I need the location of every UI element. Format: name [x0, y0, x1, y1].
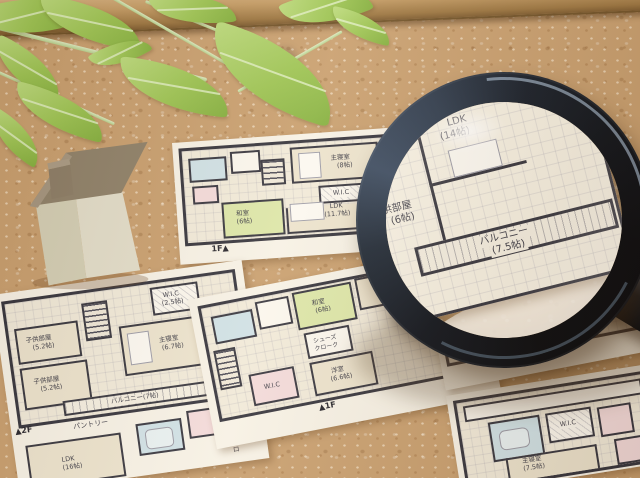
- bed-symbol: [298, 152, 322, 179]
- plan-c-shoes-cloak: シューズ クローク: [304, 325, 354, 359]
- plan-a-washitsu: 和室 (6帖): [221, 198, 285, 238]
- cork-board: 和室 (6帖) 主寝室 (8帖) W.I.C LDK (11.7帖) 1F▲ 2…: [0, 0, 640, 478]
- plan-e-room-2: [614, 434, 640, 465]
- house-model: [19, 130, 158, 293]
- floor-label-1f: ▲1F: [318, 400, 337, 412]
- room-size-label: (6.6帖): [330, 372, 353, 384]
- room-label: バルコニー(7帖): [109, 392, 162, 407]
- plan-b-stairs: [81, 300, 112, 341]
- magnifier-lens: LDK (14帖) 子供部屋 (6帖) 部屋 (帖) バルコニー (7.5帖): [386, 102, 622, 338]
- room-size-label: (5.2帖): [40, 383, 63, 394]
- bed-symbol: [127, 331, 153, 366]
- floor-label-1f: 1F▲: [211, 243, 229, 253]
- plan-a-stairs: [260, 158, 286, 186]
- room-size-label: (5.2帖): [32, 342, 55, 353]
- leaf: [116, 56, 233, 117]
- house-roof: [28, 142, 150, 206]
- plan-c-stairs: [213, 347, 242, 390]
- room-size-label: (6.7帖): [162, 342, 185, 353]
- room-size-label: (6帖): [315, 305, 332, 316]
- magnifying-glass: LDK (14帖) 子供部屋 (6帖) 部屋 (帖) バルコニー (7.5帖): [356, 72, 640, 368]
- plan-e-room-1: [597, 402, 635, 437]
- kitchen-counter-symbol: [419, 102, 468, 109]
- floor-label-2f: ▲2F: [15, 425, 33, 436]
- bathtub-symbol: [144, 426, 175, 450]
- plan-c-washitsu: 和室 (6帖): [292, 282, 358, 331]
- plan-a-closet: [192, 185, 219, 205]
- plan-c-bathroom: [211, 309, 258, 344]
- house-front-face: [75, 186, 140, 278]
- house-chimney: [48, 165, 73, 200]
- room-size-label: (8帖): [337, 161, 353, 170]
- room-size-label: (6帖): [236, 218, 252, 227]
- plan-c-wic: W.I.C: [248, 366, 299, 406]
- plan-b-kids-room-1: 子供部屋 (5.2帖): [14, 320, 82, 365]
- bathtub-symbol: [498, 427, 531, 451]
- room-label: W.I.C: [263, 381, 280, 392]
- room-size-label: (16帖): [62, 462, 83, 472]
- plan-e-wic: W.I.C: [545, 407, 595, 444]
- plan-c-room: [255, 296, 294, 330]
- plan-b-ldk-1f: LDK (16帖): [25, 432, 126, 478]
- plan-b-bathroom-1f: [135, 418, 185, 456]
- plan-a-room: [230, 150, 261, 174]
- dining-table-symbol: [290, 202, 325, 222]
- room-label: W.I.C: [558, 419, 577, 430]
- plan-a-bathroom: [188, 156, 228, 183]
- room-label: W.I.C: [332, 189, 351, 198]
- room-size-label: (2.5帖): [161, 297, 184, 308]
